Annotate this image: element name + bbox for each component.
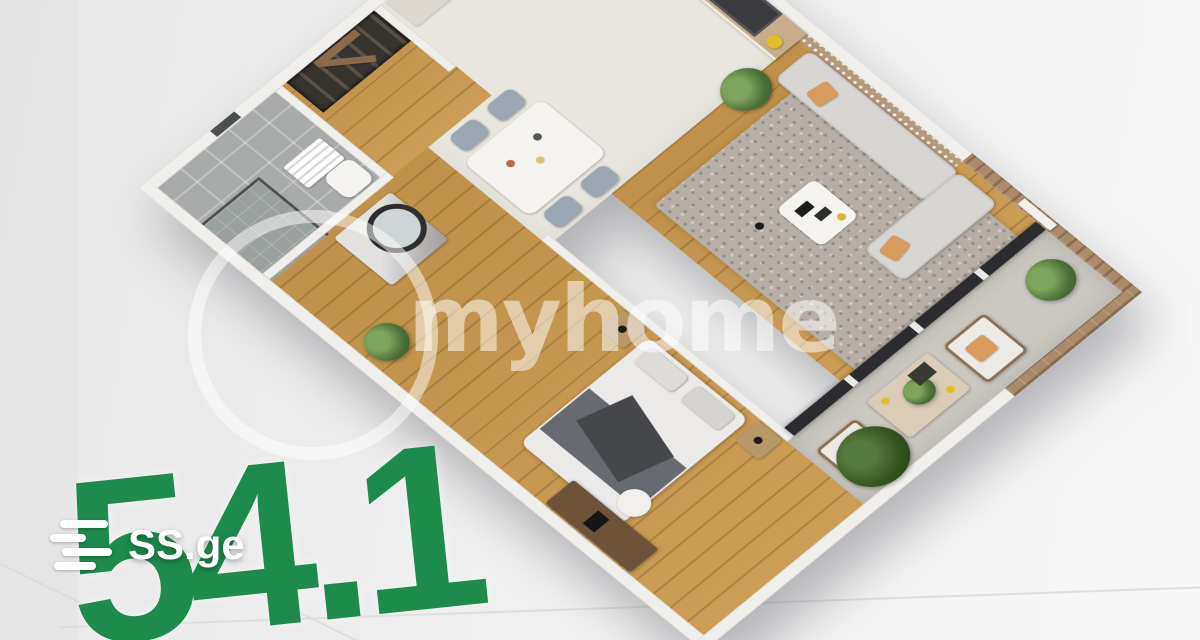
ssge-logo: SS.ge: [48, 520, 245, 570]
listing-image: myhome 54.1 SS.ge: [0, 0, 1200, 640]
ssge-logo-text: SS.ge: [128, 521, 245, 569]
speed-lines-icon: [48, 520, 112, 570]
